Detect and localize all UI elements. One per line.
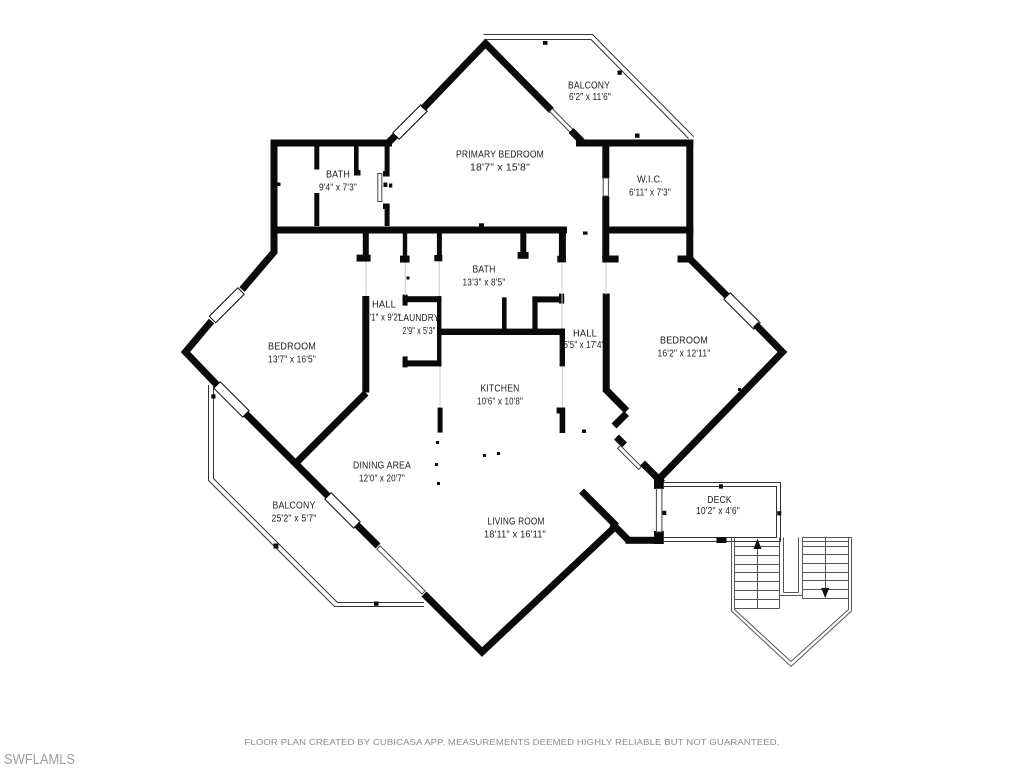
svg-text:BATH: BATH: [326, 170, 350, 181]
svg-text:13'3" x 8'5": 13'3" x 8'5": [463, 278, 506, 289]
svg-text:9'4" x 7'3": 9'4" x 7'3": [319, 183, 357, 194]
svg-text:6'11" x 7'3": 6'11" x 7'3": [629, 188, 671, 199]
svg-text:BEDROOM: BEDROOM: [268, 342, 316, 353]
svg-text:18'7" x 15'8": 18'7" x 15'8": [470, 163, 530, 174]
svg-text:W.I.C.: W.I.C.: [637, 175, 663, 186]
svg-text:KITCHEN: KITCHEN: [481, 384, 520, 395]
svg-text:DECK: DECK: [707, 495, 732, 506]
svg-text:BALCONY: BALCONY: [273, 501, 316, 512]
svg-text:BEDROOM: BEDROOM: [660, 336, 708, 347]
svg-text:PRIMARY BEDROOM: PRIMARY BEDROOM: [456, 150, 544, 161]
svg-text:FLOOR PLAN CREATED BY CUBICASA: FLOOR PLAN CREATED BY CUBICASA APP. MEAS…: [245, 737, 780, 747]
svg-text:6'2" x 11'6": 6'2" x 11'6": [569, 92, 611, 103]
svg-text:10'6" x 10'8": 10'6" x 10'8": [477, 397, 523, 408]
svg-text:18'11" x 16'11": 18'11" x 16'11": [484, 530, 546, 541]
svg-text:DINING AREA: DINING AREA: [353, 461, 411, 472]
svg-text:BATH: BATH: [473, 265, 496, 276]
svg-text:16'2" x 12'11": 16'2" x 12'11": [658, 349, 711, 360]
svg-text:HALL: HALL: [573, 329, 597, 340]
svg-text:13'7" x 16'5": 13'7" x 16'5": [268, 355, 316, 366]
svg-text:SWFLAMLS: SWFLAMLS: [4, 751, 75, 768]
svg-text:12'0" x 20'7": 12'0" x 20'7": [359, 474, 405, 485]
svg-text:5'5" x 17'4": 5'5" x 17'4": [564, 340, 605, 351]
svg-text:2'9" x 5'3": 2'9" x 5'3": [403, 326, 436, 337]
svg-text:HALL: HALL: [372, 300, 396, 311]
svg-text:LAUNDRY: LAUNDRY: [399, 313, 440, 324]
svg-text:BALCONY: BALCONY: [568, 81, 610, 92]
svg-text:25'2" x 5'7": 25'2" x 5'7": [272, 514, 317, 525]
svg-text:3'1" x 9'2": 3'1" x 9'2": [365, 313, 401, 324]
svg-text:10'2" x 4'6": 10'2" x 4'6": [696, 506, 740, 517]
svg-text:LIVING ROOM: LIVING ROOM: [488, 517, 545, 528]
